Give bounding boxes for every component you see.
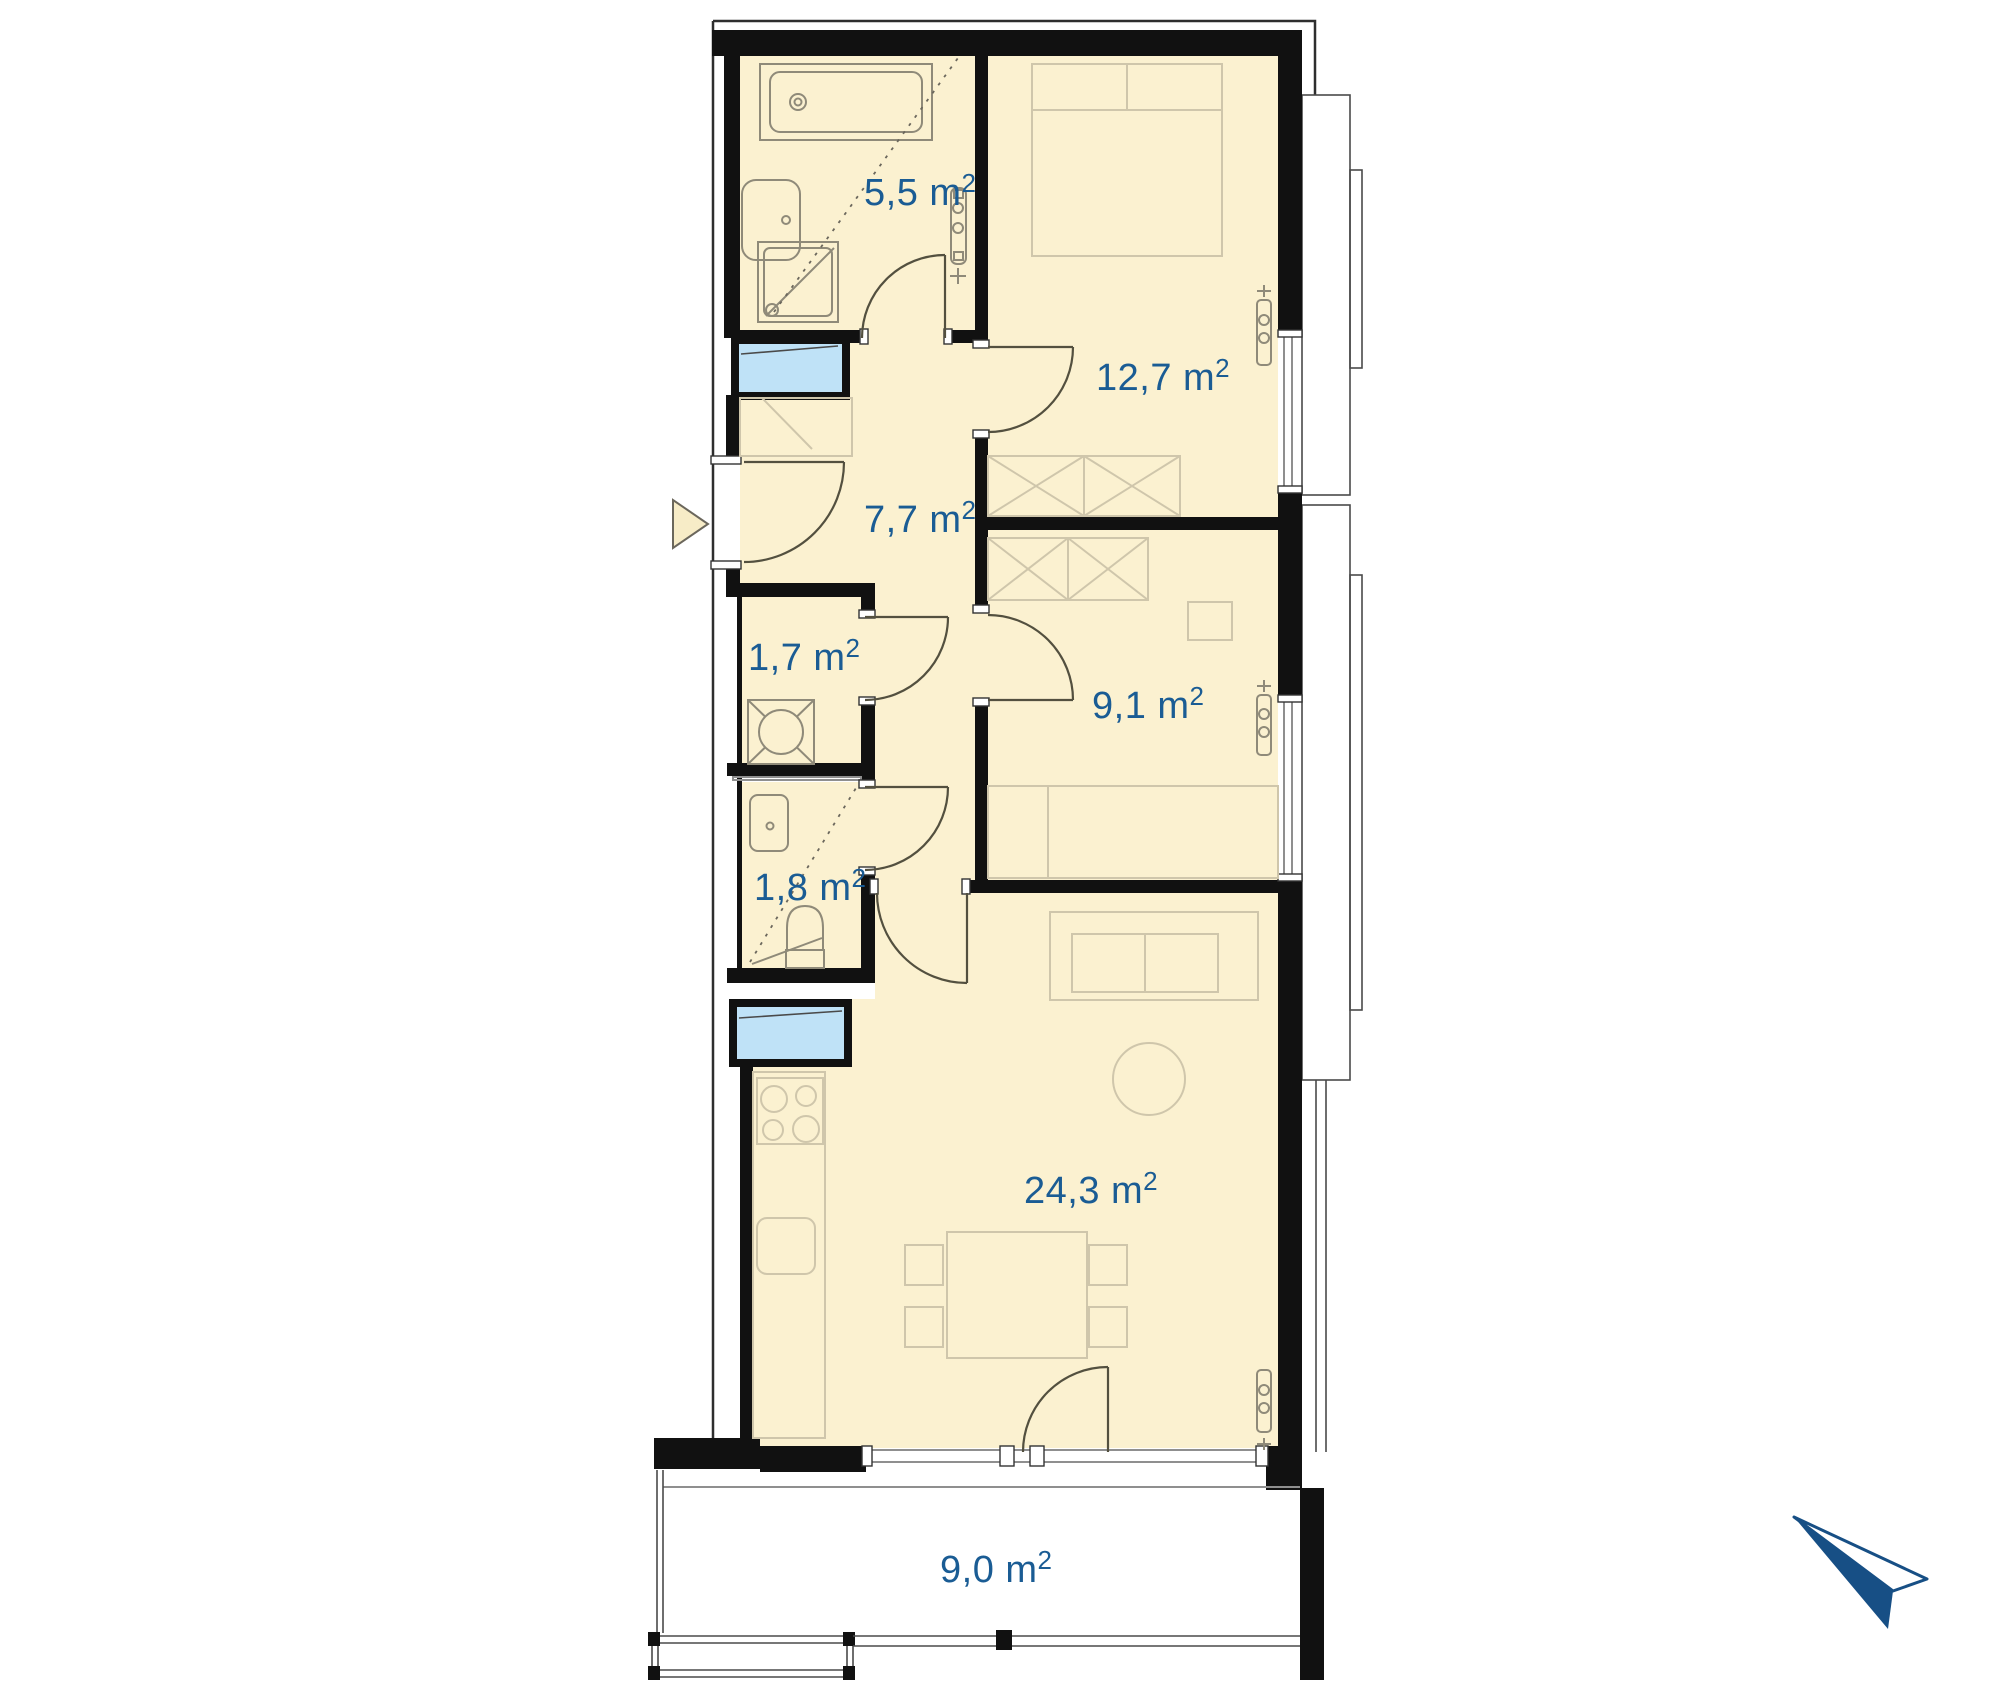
bay-window-top-lip xyxy=(1350,170,1362,368)
window-bedroom-small xyxy=(1278,695,1302,881)
room-label-wc: 1,8 m2 xyxy=(754,863,867,909)
room-label-bathroom: 5,5 m2 xyxy=(864,168,977,214)
room-label-bedroom-small: 9,1 m2 xyxy=(1092,681,1205,727)
balcony-railing xyxy=(648,1630,1300,1680)
doorway-floor-storage xyxy=(861,617,875,700)
bay-window-top xyxy=(1302,95,1350,495)
bay-window-middle xyxy=(1302,505,1350,1080)
room-label-living: 24,3 m2 xyxy=(1024,1166,1158,1212)
entrance-arrow-icon xyxy=(673,500,708,548)
room-fills xyxy=(740,56,1278,1448)
room-label-hallway: 7,7 m2 xyxy=(864,495,977,541)
doorway-floor-wc xyxy=(861,787,875,870)
room-label-bedroom-large: 12,7 m2 xyxy=(1096,353,1230,399)
doorway-floor-living xyxy=(877,880,965,893)
room-label-balcony: 9,0 m2 xyxy=(940,1545,1053,1591)
floor-plan-page: 5,5 m2 12,7 m2 7,7 m2 1,7 m2 9,1 m2 1,8 … xyxy=(0,0,2000,1700)
paper-plane-logo-icon xyxy=(1794,1517,1927,1629)
window-bedroom-large xyxy=(1278,330,1302,493)
doorway-floor-bedroom-large xyxy=(975,347,988,433)
window-living-south xyxy=(862,1446,1268,1466)
bay-window-middle-lip xyxy=(1350,575,1362,1010)
shaft-1 xyxy=(731,336,850,400)
doorway-floor-bedroom-small xyxy=(975,612,988,700)
shaft-2 xyxy=(729,999,852,1067)
room-label-storage: 1,7 m2 xyxy=(748,633,861,679)
doorway-floor-bathroom xyxy=(867,330,947,343)
floor-plan-drawing: 5,5 m2 12,7 m2 7,7 m2 1,7 m2 9,1 m2 1,8 … xyxy=(0,0,2000,1700)
